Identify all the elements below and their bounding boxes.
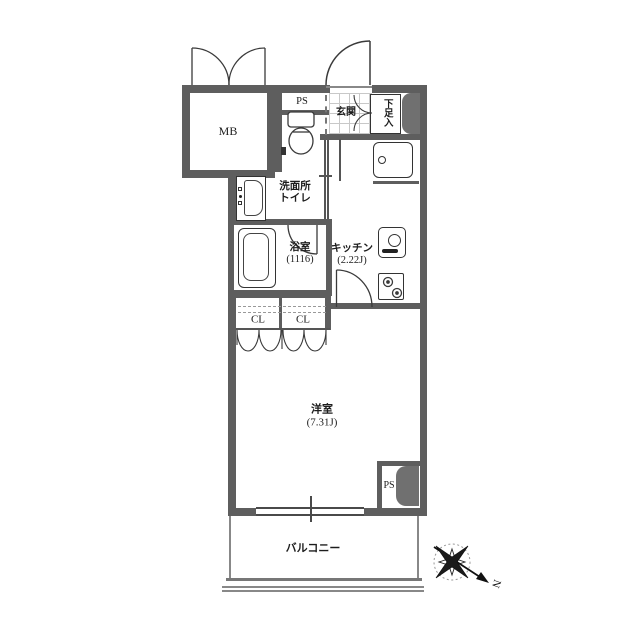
- washroom-label: 洗面所: [279, 182, 311, 193]
- right-wall: [420, 85, 427, 516]
- washroom-partition-line-b: [327, 140, 329, 219]
- washbasin-icon: [236, 176, 266, 221]
- genkan-label: 玄関: [336, 108, 356, 118]
- ps-top-label: PS: [296, 97, 308, 108]
- closet-hatch-band: [238, 306, 326, 313]
- duct-top-right: [402, 93, 420, 134]
- toilet-icon: [281, 112, 314, 155]
- washbasin-knob-top: [238, 187, 242, 191]
- ps-bottom-label: PS: [383, 481, 394, 491]
- genkan-boundary-dashed-line: [325, 95, 327, 135]
- top-wall-left: [275, 85, 330, 93]
- washer-pan-icon: [373, 142, 413, 178]
- kitchen-sink-icon: [378, 227, 406, 258]
- compass-icon: N: [434, 544, 503, 589]
- balcony-label: バルコニー: [286, 544, 341, 555]
- mb-door-arcs: [192, 48, 265, 85]
- genkan-step-wall: [320, 134, 427, 140]
- sink-faucet: [382, 249, 398, 253]
- closet-left-label: CL: [251, 315, 265, 326]
- top-wall-right: [372, 85, 427, 93]
- kitchen-bottom-wall: [330, 303, 427, 309]
- bathtub-inner: [243, 233, 269, 281]
- sink-drain: [388, 234, 401, 247]
- duct-bottom-right: [396, 466, 419, 506]
- washbasin-bowl: [244, 180, 263, 216]
- kitchen-door-arc: [337, 270, 373, 307]
- washbasin-knob-bottom: [238, 201, 242, 205]
- washbasin-knob-dot: [239, 195, 242, 198]
- ps-top-bottom-wall: [275, 110, 330, 115]
- western-room-label: 洋室: [311, 405, 333, 416]
- compass-cardinal-star: [439, 549, 465, 575]
- washroom-left-wall: [273, 93, 282, 172]
- bath-label: 浴室: [290, 243, 311, 254]
- hall-edge-line: [339, 139, 341, 181]
- mb-label: MB: [219, 125, 238, 137]
- closet-top-wall: [236, 294, 330, 298]
- compass-needle-arrow: [476, 572, 489, 583]
- balcony-railing-line: [226, 578, 422, 581]
- balcony-right-line: [417, 516, 419, 580]
- closet-door-scallops: [237, 330, 326, 351]
- closet-bottom-line: [236, 328, 330, 330]
- bottom-wall-left: [228, 508, 256, 516]
- compass-north-label: N: [489, 578, 503, 590]
- window-center-tick: [310, 496, 312, 522]
- entry-threshold-line: [326, 86, 372, 88]
- kitchen-label: キッチン: [331, 244, 373, 255]
- balcony-outer-line-1: [222, 586, 424, 588]
- closet-right-label: CL: [296, 315, 310, 326]
- floor-plan: N MB PS 玄関 下足入 洗面所 トイレ 浴室 (1116) キッチン (2…: [0, 0, 640, 639]
- ps-bottom-left-wall: [377, 461, 382, 511]
- toilet-label: トイレ: [279, 194, 311, 205]
- compass-diagonal-star: [436, 546, 468, 578]
- washroom-partition-line-a: [324, 140, 326, 219]
- bath-size-label: (1116): [286, 255, 313, 266]
- washroom-partition-tick: [319, 175, 332, 177]
- stove-icon: [378, 273, 404, 300]
- western-room-size-label: (7.31J): [307, 418, 338, 429]
- shoe-cabinet-label: 下足入: [381, 99, 391, 128]
- ps-bottom-top-wall: [377, 461, 427, 466]
- bathtub-icon: [238, 228, 276, 288]
- entrance-door-arc: [326, 41, 370, 85]
- washer-pan-edge-wall: [373, 181, 419, 184]
- kitchen-size-label: (2.22J): [337, 256, 366, 267]
- washer-drain: [378, 156, 386, 164]
- balcony-left-line: [229, 516, 231, 580]
- bottom-wall-right: [364, 508, 427, 516]
- balcony-outer-line-2: [222, 590, 424, 592]
